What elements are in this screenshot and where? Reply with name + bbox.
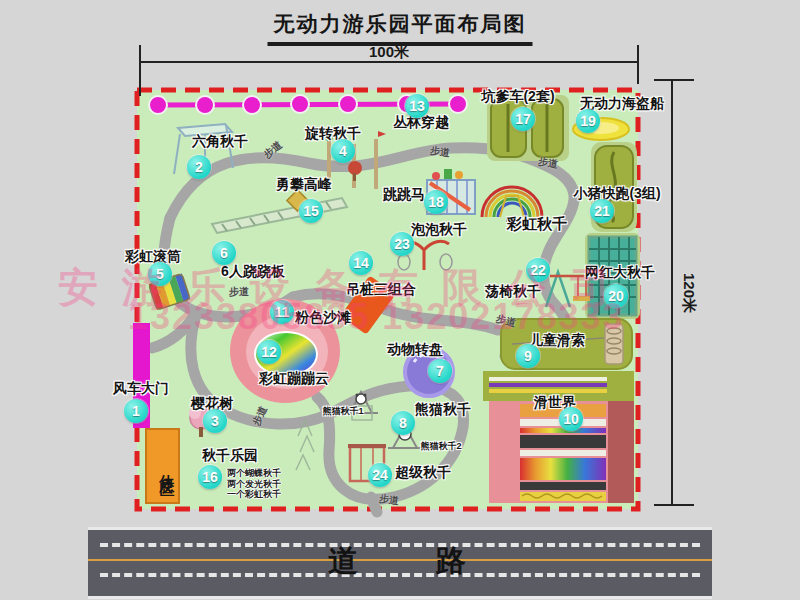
attraction-label-24: 超级秋千 (395, 464, 451, 482)
attraction-number-21: 21 (590, 199, 614, 223)
attraction-number-5: 5 (148, 262, 172, 286)
attraction-number-8: 8 (391, 411, 415, 435)
extra-label-1: 熊猫秋千1 (322, 405, 363, 418)
slide-world-shape (483, 371, 634, 503)
rest-area-label: 休息区 (150, 437, 176, 499)
height-dimension-label: 120米 (679, 273, 698, 313)
attraction-number-7: 7 (428, 359, 452, 383)
attraction-number-20: 20 (604, 284, 628, 308)
extra-label-0: 彩虹秋千 (507, 215, 567, 234)
attraction-label-23: 泡泡秋千 (411, 221, 467, 239)
attraction-number-12: 12 (257, 340, 281, 364)
road: 道 路 (88, 527, 712, 599)
attraction-number-16: 16 (198, 465, 222, 489)
swing-park-detail-line: 一个彩虹秋千 (227, 489, 281, 500)
attraction-number-23: 23 (390, 232, 414, 256)
swing-park-detail-line: 两个蝴蝶秋千 (227, 468, 281, 479)
attraction-label-16: 秋千乐园 (202, 447, 258, 465)
attraction-number-24: 24 (368, 463, 392, 487)
attraction-number-10: 10 (559, 407, 583, 431)
attraction-number-3: 3 (203, 409, 227, 433)
attraction-label-6: 6人跷跷板 (221, 263, 285, 281)
extra-label-2: 熊猫秋千2 (420, 440, 461, 453)
attraction-number-11: 11 (270, 300, 294, 324)
attraction-number-22: 22 (526, 258, 550, 282)
attraction-number-4: 4 (331, 139, 355, 163)
attraction-label-22: 荡椅秋千 (485, 283, 541, 301)
attraction-label-11: 粉色沙滩 (295, 309, 351, 327)
attraction-number-19: 19 (576, 109, 600, 133)
attraction-label-17: 坑爹车(2套) (481, 88, 554, 106)
attraction-number-2: 2 (187, 155, 211, 179)
attraction-number-13: 13 (405, 94, 429, 118)
attraction-number-15: 15 (299, 199, 323, 223)
attraction-label-18: 跳跳马 (383, 186, 425, 204)
attraction-label-7: 动物转盘 (387, 341, 443, 359)
trail-label-6: 步道 (378, 492, 400, 509)
attraction-number-17: 17 (511, 107, 535, 131)
attraction-label-14: 吊桩三组合 (346, 281, 416, 299)
page-title: 无动力游乐园平面布局图 (268, 10, 533, 46)
attraction-number-6: 6 (212, 241, 236, 265)
attraction-label-15: 勇攀高峰 (276, 176, 332, 194)
attraction-label-4: 旋转秋千 (305, 125, 361, 143)
attraction-label-1: 风车大门 (113, 380, 169, 398)
attraction-label-9: 儿童滑索 (529, 332, 585, 350)
attraction-number-9: 9 (516, 344, 540, 368)
attraction-number-18: 18 (424, 190, 448, 214)
attraction-number-1: 1 (124, 399, 148, 423)
swing-park-details: 两个蝴蝶秋千两个发光秋千一个彩虹秋千 (227, 468, 281, 500)
attraction-number-14: 14 (349, 251, 373, 275)
attraction-label-12: 彩虹蹦蹦云 (259, 370, 329, 388)
attraction-label-21: 小猪快跑(3组) (573, 185, 660, 203)
attraction-label-8: 熊猫秋千 (415, 401, 471, 419)
trail-label-1: 步道 (429, 144, 451, 161)
width-dimension-label: 100米 (369, 43, 409, 62)
playground-plan-page: 无动力游乐园平面布局图 100米 120米 休息区 风车大门1六角秋千2樱花树3… (0, 0, 800, 600)
attraction-label-2: 六角秋千 (192, 133, 248, 151)
swing-park-detail-line: 两个发光秋千 (227, 479, 281, 490)
road-label: 道 路 (328, 541, 472, 582)
attraction-label-20: 网红大秋千 (585, 264, 655, 282)
trail-label-3: 步道 (229, 285, 249, 299)
